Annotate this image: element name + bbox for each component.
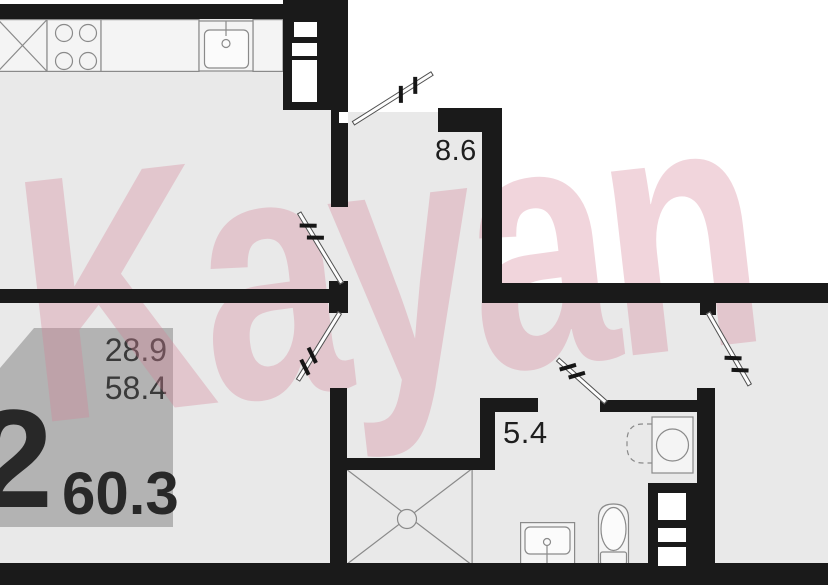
corridor-area-label: 8.6 <box>435 137 477 166</box>
stove-icon <box>47 20 101 72</box>
toilet-icon <box>597 503 631 566</box>
door-seal-icon <box>732 368 749 373</box>
vent-opening <box>658 547 686 566</box>
wall-segment <box>482 108 502 285</box>
badge-area-total: 60.3 <box>62 464 179 524</box>
vent-opening <box>658 528 686 542</box>
door-seal-icon <box>399 86 403 103</box>
vent-opening <box>658 493 686 520</box>
floor-plan: 28.9 58.4 2 60.3 Kayan <box>0 0 828 585</box>
door-seal-icon <box>725 356 742 361</box>
wall-segment <box>600 400 715 412</box>
countertop-icon <box>101 20 283 72</box>
shower-cabin-icon <box>345 468 473 566</box>
base-cabinet-icon <box>0 20 47 72</box>
door-seal-icon <box>300 224 317 228</box>
vent-opening <box>292 60 317 102</box>
badge-area-top: 28.9 <box>105 334 167 366</box>
kitchen-sink-icon <box>199 21 253 71</box>
wall-segment <box>0 289 331 303</box>
wall-segment <box>482 283 828 303</box>
badge-area-middle: 58.4 <box>105 372 167 404</box>
wall-segment <box>331 110 348 207</box>
vent-opening <box>294 22 317 37</box>
wall-segment <box>0 563 828 585</box>
bathroom-sink-icon <box>520 522 576 565</box>
wall-segment <box>347 458 493 470</box>
door-seal-icon <box>559 363 576 372</box>
wall-segment <box>330 388 347 567</box>
vent-opening <box>339 112 348 123</box>
door-seal-icon <box>413 77 417 94</box>
badge-rooms-count: 2 <box>0 389 53 529</box>
door-seal-icon <box>307 235 324 239</box>
washing-machine-icon <box>612 414 698 476</box>
kitchen-fixtures <box>0 19 283 73</box>
wall-segment <box>329 281 348 313</box>
bathroom-area-label: 5.4 <box>503 417 548 448</box>
vent-opening <box>292 43 317 56</box>
